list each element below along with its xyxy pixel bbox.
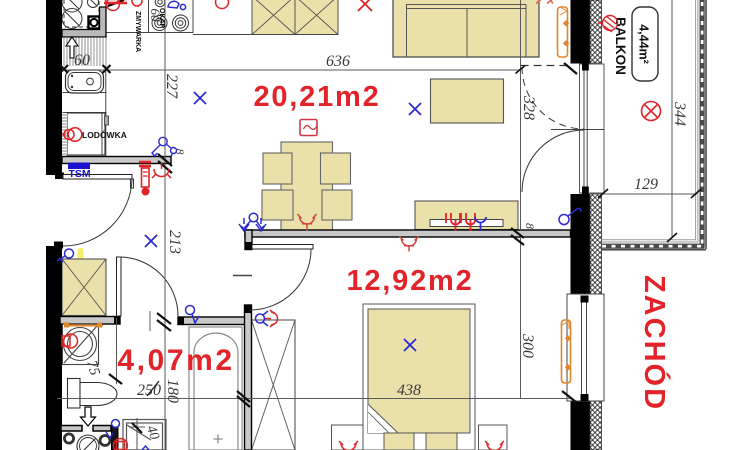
svg-text:438: 438 bbox=[397, 382, 421, 399]
svg-text:20,21m2: 20,21m2 bbox=[253, 81, 380, 113]
svg-text:LODÓWKA: LODÓWKA bbox=[82, 129, 127, 140]
svg-text:227: 227 bbox=[163, 74, 180, 99]
svg-text:8: 8 bbox=[523, 223, 537, 229]
svg-text:213: 213 bbox=[166, 230, 183, 254]
svg-text:4,44m²: 4,44m² bbox=[637, 24, 651, 64]
svg-text:60: 60 bbox=[74, 52, 90, 69]
svg-text:OKAP: OKAP bbox=[158, 8, 165, 29]
svg-text:328: 328 bbox=[520, 95, 537, 120]
svg-text:344: 344 bbox=[671, 101, 688, 126]
svg-text:636: 636 bbox=[326, 53, 350, 70]
svg-text:4,07m2: 4,07m2 bbox=[117, 344, 234, 377]
svg-text:129: 129 bbox=[634, 176, 658, 193]
svg-text:TSM: TSM bbox=[69, 168, 91, 180]
svg-text:12,92m2: 12,92m2 bbox=[346, 265, 473, 297]
svg-text:ZMYWARKA: ZMYWARKA bbox=[134, 11, 141, 52]
svg-text:BALKON: BALKON bbox=[613, 17, 628, 75]
svg-text:300: 300 bbox=[519, 333, 536, 358]
svg-text:250: 250 bbox=[137, 382, 161, 399]
svg-text:ZACHÓD: ZACHÓD bbox=[638, 275, 672, 411]
svg-text:180: 180 bbox=[164, 379, 181, 403]
